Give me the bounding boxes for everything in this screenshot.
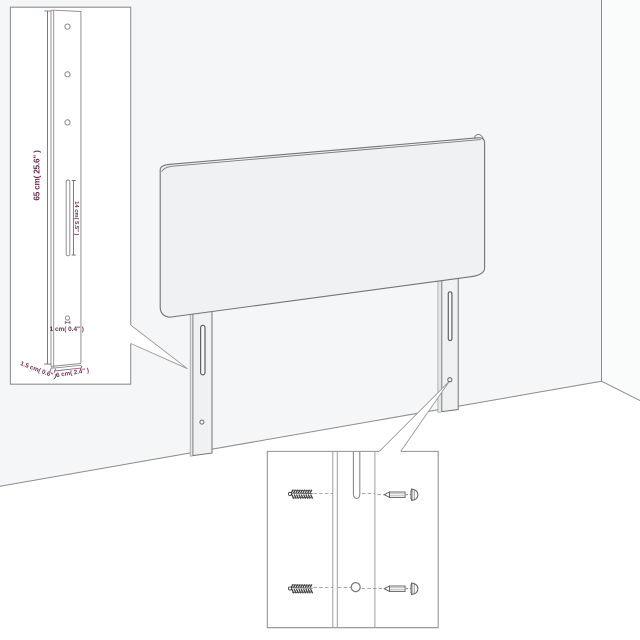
svg-text:14 cm( 5.5" ): 14 cm( 5.5" ) — [73, 201, 79, 235]
svg-text:1 cm( 0.4" ): 1 cm( 0.4" ) — [50, 326, 84, 333]
svg-text:65 cm( 25.6" ): 65 cm( 25.6" ) — [32, 150, 41, 201]
